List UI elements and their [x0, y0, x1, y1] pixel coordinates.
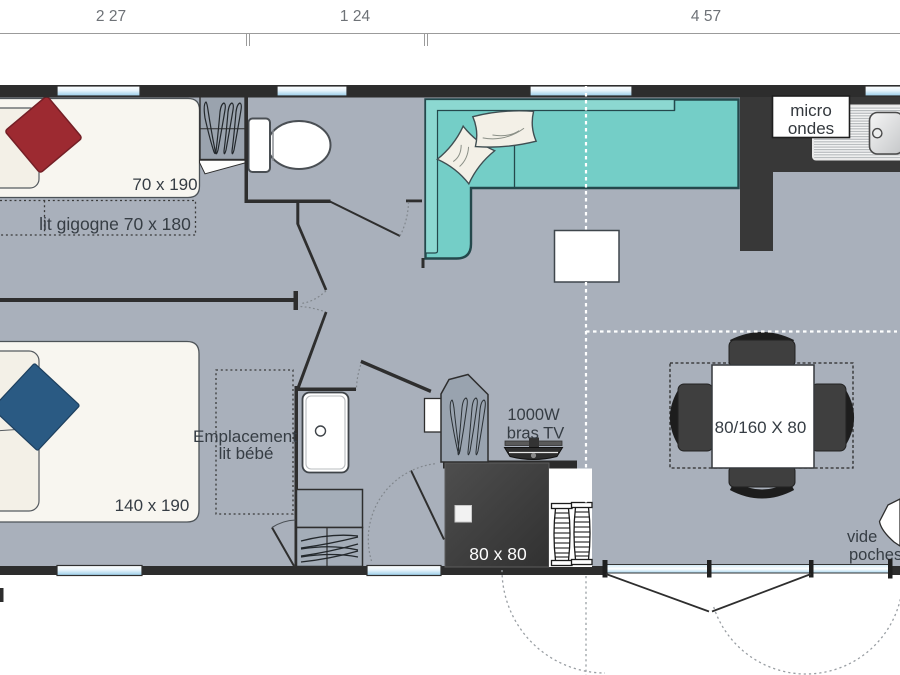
svg-text:lit gigogne 70 x 180: lit gigogne 70 x 180	[39, 214, 191, 234]
svg-text:1 24: 1 24	[340, 8, 371, 25]
svg-text:ondes: ondes	[788, 119, 834, 138]
svg-text:80 x 80: 80 x 80	[469, 544, 527, 564]
svg-text:2 27: 2 27	[96, 8, 126, 25]
svg-text:lit bébé: lit bébé	[219, 444, 274, 463]
svg-text:140 x 190: 140 x 190	[115, 496, 190, 515]
svg-text:vide: vide	[847, 528, 877, 546]
svg-text:80/160 X 80: 80/160 X 80	[715, 418, 807, 437]
svg-text:bras TV: bras TV	[507, 425, 564, 443]
svg-text:1000W: 1000W	[507, 406, 560, 424]
svg-text:70 x 190: 70 x 190	[132, 175, 197, 194]
svg-text:4 57: 4 57	[691, 8, 721, 25]
svg-text:micro: micro	[790, 101, 832, 120]
